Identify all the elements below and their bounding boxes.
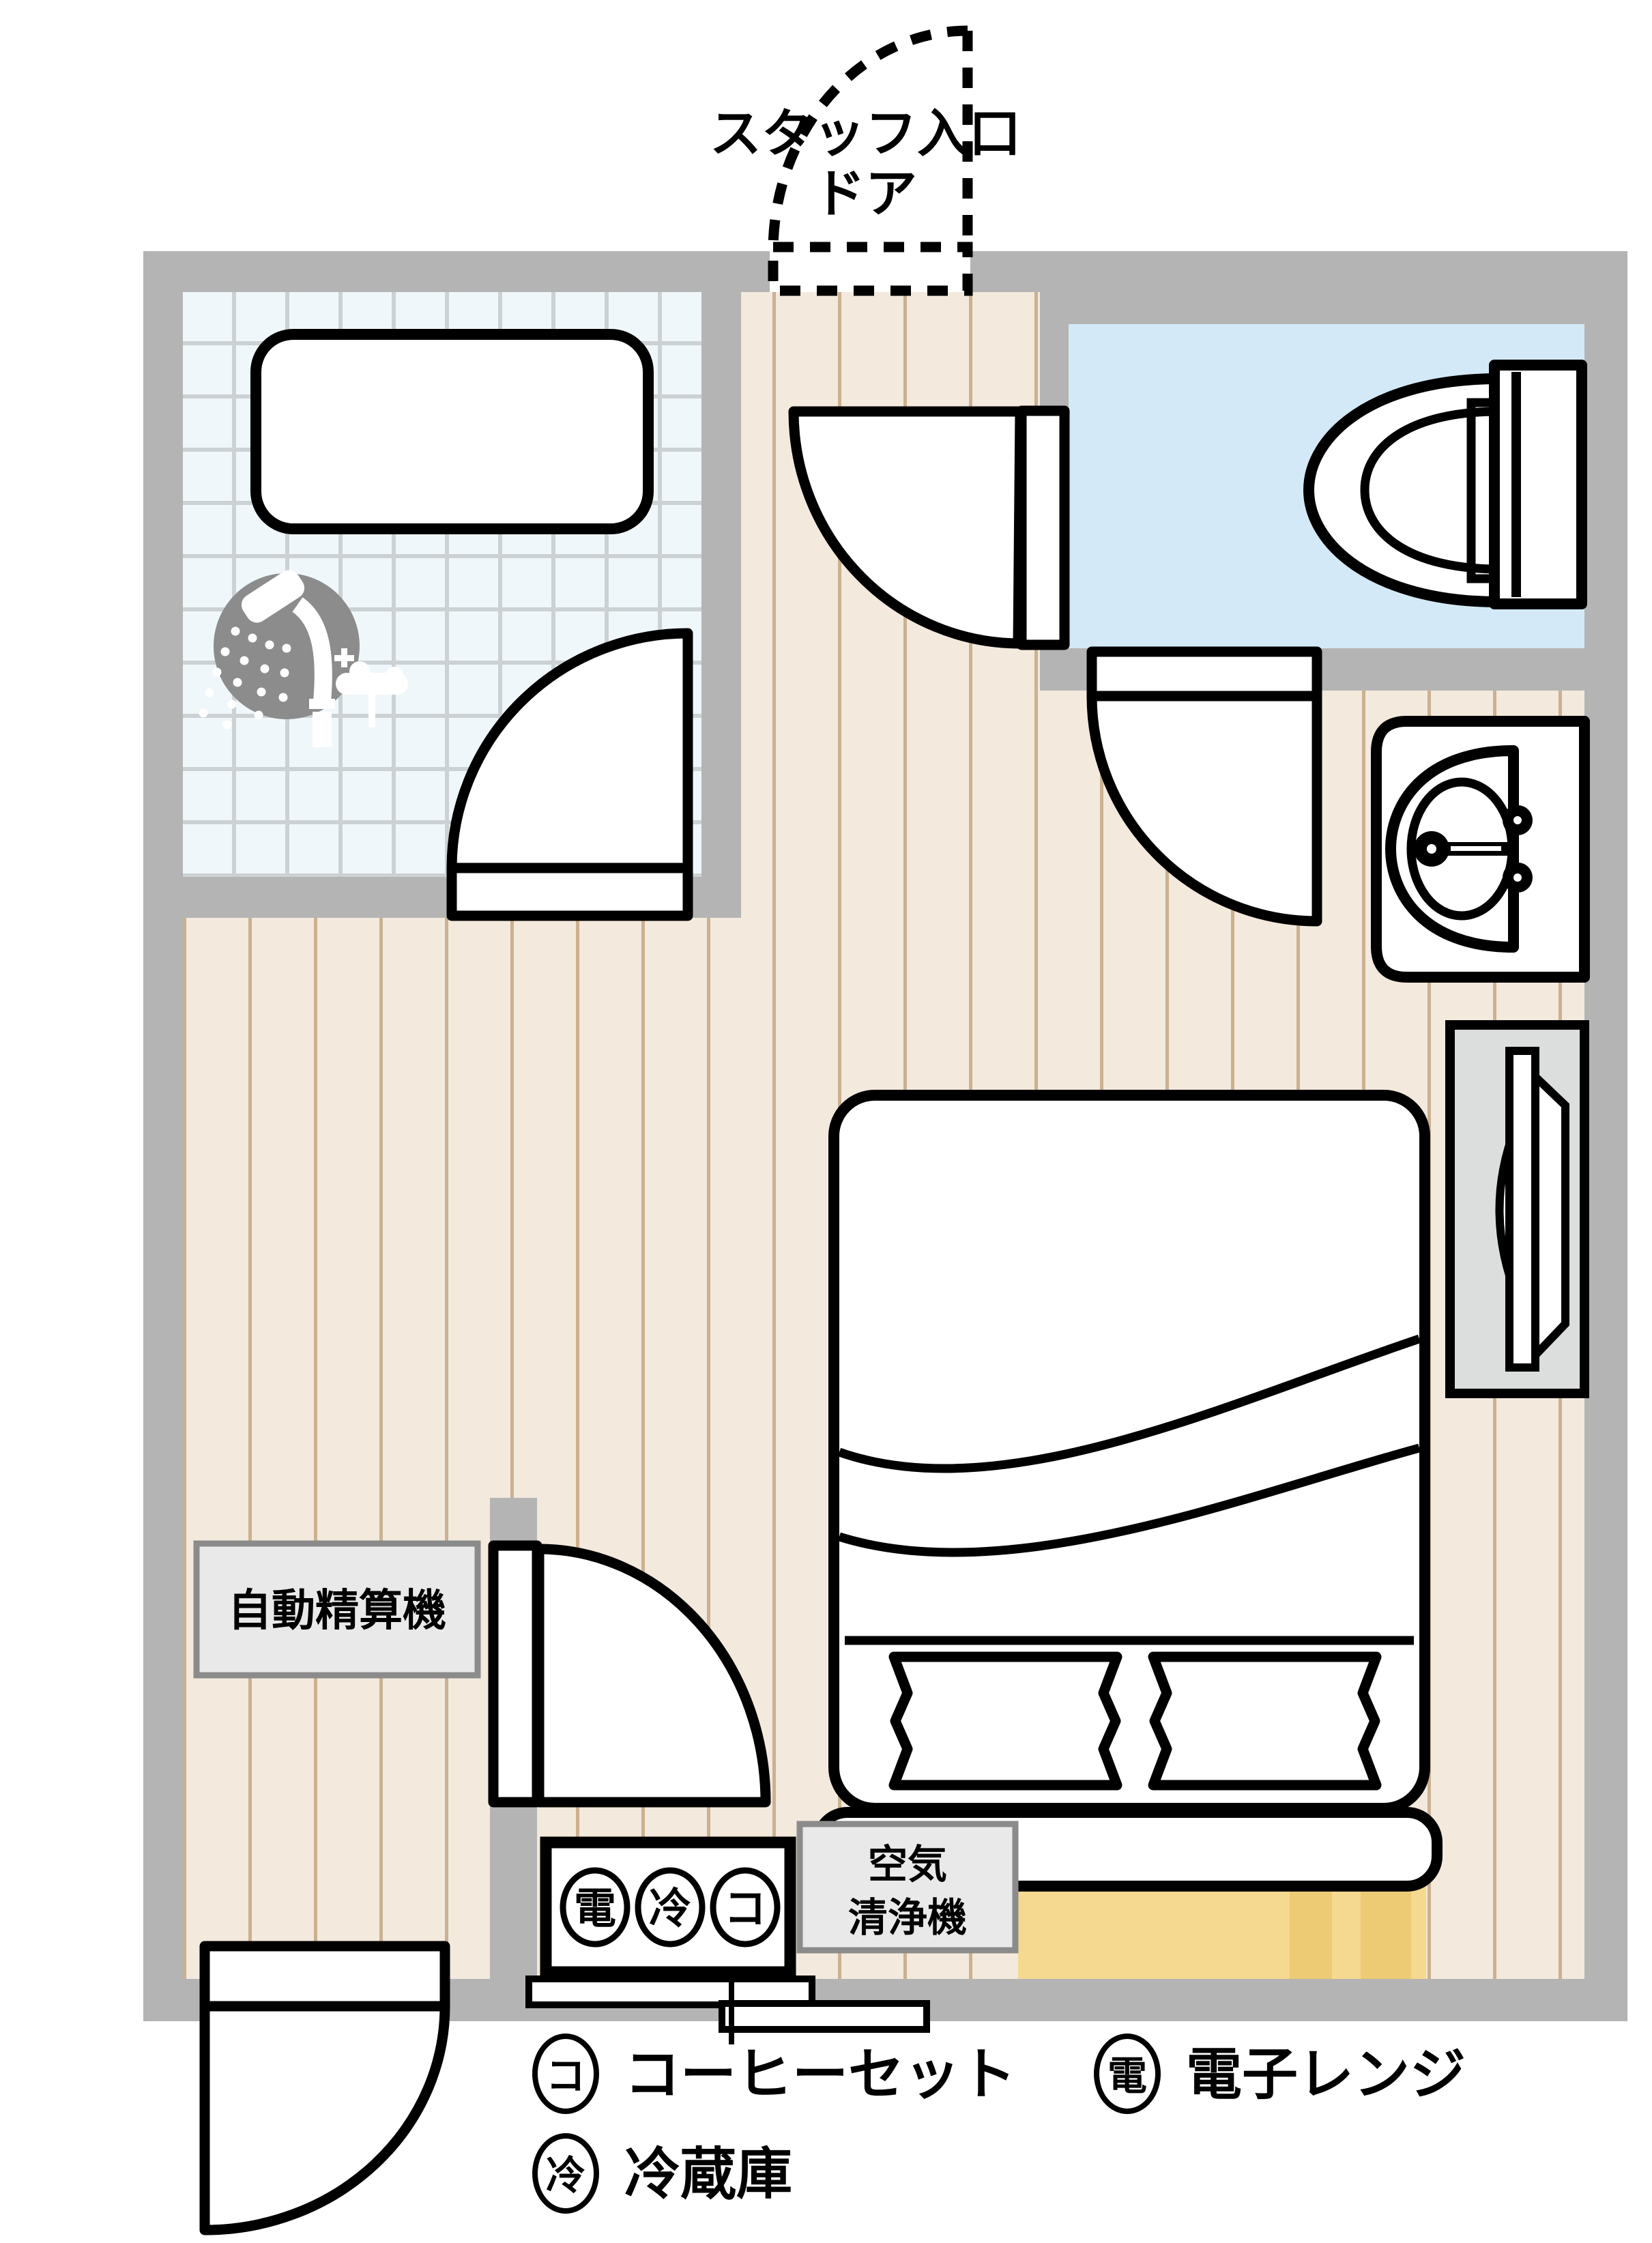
sink-door-leaf	[1092, 652, 1317, 696]
svg-text:冷蔵庫: 冷蔵庫	[624, 2143, 792, 2205]
entrance-door-leaf	[205, 1946, 445, 2006]
wall-right	[1584, 251, 1627, 2021]
floor-plan: 電 冷 コ スタッフ入口 ドア 自動精算機 空気 清浄機 コ コーヒーセット 電…	[0, 0, 1652, 2240]
minibar-coffee-char: コ	[724, 1885, 766, 1933]
wall-top-right	[970, 251, 1627, 292]
wall-toilet-bottom-left	[1040, 648, 1092, 691]
minibar-microwave-char: 電	[574, 1885, 616, 1933]
svg-text:電: 電	[1107, 2054, 1147, 2098]
toilet-door-leaf	[1021, 411, 1064, 645]
minibar-unit: 電 冷 コ	[546, 1842, 790, 1972]
vestibule-door-leaf	[493, 1546, 537, 1802]
wall-toilet-bottom-right	[1317, 648, 1627, 691]
entrance-door	[205, 1946, 445, 2230]
svg-text:空気: 空気	[868, 1842, 947, 1887]
svg-text:清浄機: 清浄機	[848, 1896, 967, 1940]
wall-toilet-left-upper	[1040, 292, 1069, 411]
tv-cabinet	[1450, 1025, 1584, 1393]
wall-top-left	[143, 251, 770, 292]
svg-text:冷: 冷	[546, 2154, 585, 2198]
wall-bottom-left	[143, 1979, 201, 2021]
bathroom-door-leaf	[452, 868, 688, 916]
air-purifier-label: 空気 清浄機	[800, 1824, 1015, 1950]
svg-text:ドア: ドア	[813, 165, 917, 223]
pillow-left	[894, 1657, 1117, 1785]
legend-coffee: コ コーヒーセット	[535, 2036, 1016, 2111]
wall-bathroom-right	[701, 292, 741, 918]
wall-left	[143, 292, 183, 2021]
svg-text:電子レンジ: 電子レンジ	[1186, 2044, 1466, 2106]
sink-vanity	[1376, 721, 1584, 977]
floor-plan-svg: 電 冷 コ スタッフ入口 ドア 自動精算機 空気 清浄機 コ コーヒーセット 電…	[0, 0, 1652, 2240]
bed	[817, 1095, 1437, 1886]
wall-bathroom-bottom-left	[183, 877, 450, 918]
toilet-tank	[1494, 365, 1582, 604]
legend-microwave: 電 電子レンジ	[1097, 2036, 1466, 2111]
staff-door-label: スタッフ入口 ドア	[710, 105, 1021, 223]
legend-fridge: 冷 冷蔵庫	[535, 2136, 792, 2211]
pillow-right	[1153, 1657, 1376, 1785]
staff-door-leaf	[773, 247, 968, 291]
wall-bathroom-bottom-right	[689, 877, 741, 918]
legend: コ コーヒーセット 電 電子レンジ 冷 冷蔵庫	[535, 2036, 1466, 2211]
bathtub	[256, 334, 648, 529]
wall-above-toilet	[1040, 292, 1627, 324]
minibar-fridge-char: 冷	[649, 1885, 691, 1933]
payment-machine-label: 自動精算機	[197, 1544, 478, 1675]
tv-screen	[1509, 1051, 1535, 1367]
svg-text:コ: コ	[546, 2054, 585, 2098]
wall-vestibule-lower	[490, 1802, 537, 1980]
svg-text:自動精算機: 自動精算機	[228, 1586, 446, 1635]
svg-text:スタッフ入口: スタッフ入口	[710, 105, 1021, 163]
svg-text:コーヒーセット: コーヒーセット	[624, 2044, 1016, 2106]
